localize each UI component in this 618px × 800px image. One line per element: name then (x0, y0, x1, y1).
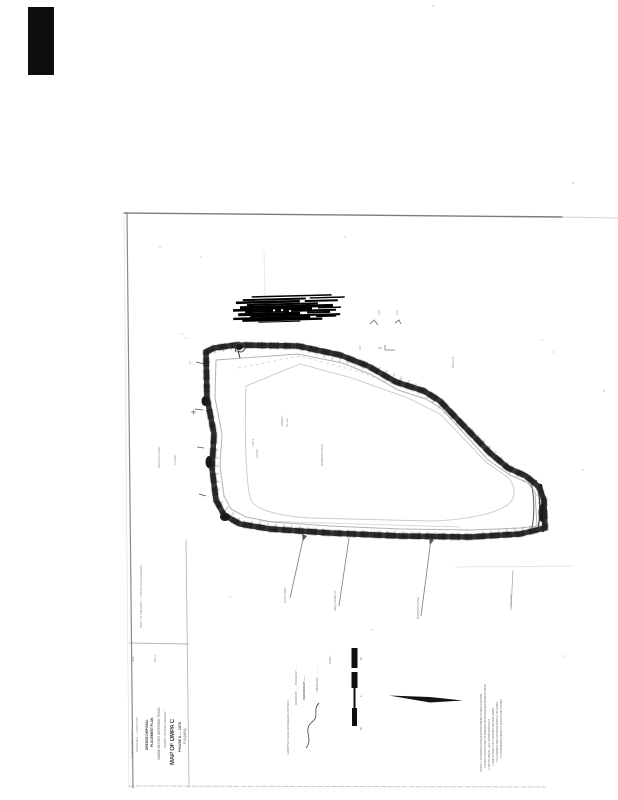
scale-tick-1: 40 (361, 658, 364, 660)
map-label-area-elevation: EL +9.0 (286, 418, 289, 427)
approval-line-date: DATE .... (329, 654, 332, 664)
map-spot-elevation-3: 10.8 (359, 345, 362, 350)
signature-squiggle (306, 703, 319, 748)
titleblock-waterway-line: SABINE-NECHES WATERWAY, TEXAS (158, 708, 161, 760)
titleblock-vicinity-line: VICINITY OF PORT ARTHUR (164, 712, 167, 748)
map-label-dike-station: DIKE STA (452, 357, 455, 368)
map-label-slope: SLOPE (256, 449, 259, 458)
titleblock-phase-line: PHASE II — 1976 (178, 722, 182, 752)
interior-contours (215, 354, 537, 530)
map-spot-elevation-4: 12 (190, 361, 193, 364)
margin-file-number: NO. 4 (154, 655, 157, 662)
graphic-scale-bar (352, 648, 358, 726)
titleblock-sheet-code: P-III (MPA) (184, 729, 188, 744)
approval-line-approved: APPROVED ................ (316, 667, 319, 692)
map-callout-borrow-ditch: BORROW DITCH (417, 597, 420, 619)
margin-agency-column: DEPT. OF THE ARMY — CORPS OF ENGINEERS (140, 565, 143, 628)
map-callout-spillway: SPILLWAY (510, 594, 513, 607)
scale-tick-2: 0 (361, 696, 364, 697)
map-spot-elevation-2: 11.4 (396, 310, 399, 315)
scanned-site-plan-page: SHAW & ASSOC. INC. ENGINEERS — SURVEYORS… (0, 0, 618, 800)
map-label-area: DMPA C (281, 416, 284, 426)
note-line-6: 6. COORDINATES REFER TO STATE PLANE SYST… (501, 699, 504, 758)
approval-line-checked: CHECKED BY ........ (303, 676, 306, 700)
titleblock-firm-line2: ENGINEERS — SURVEYORS (136, 717, 139, 752)
scan-speckles (159, 5, 605, 657)
scale-pointer-wedge (389, 696, 463, 703)
map-callout-exist-dike: EXIST. DIKE (284, 588, 287, 603)
titleblock-firm-line: SHAW & ASSOC. INC. (131, 730, 134, 758)
map-label-borrow-ditch: BORROW DITCH (321, 444, 324, 466)
map-spot-elevation-1: 11.6 (378, 310, 381, 315)
leaders-and-ticks (191, 320, 513, 616)
titleblock-main-title: MAP OF DMPA C (170, 719, 176, 765)
map-label-existing-levee: EXISTING LEVEE (158, 447, 161, 468)
map-label-slope-ratio: 1 ON 3 (252, 439, 255, 447)
margin-file-label: FILE (132, 657, 135, 662)
site-plan-drawing (0, 0, 618, 800)
map-callout-new-levee: NEW LEVEE CL (334, 591, 337, 611)
redaction-scribble (233, 295, 346, 323)
approval-line-drawn: DRAWN BY ........ TRACED BY ........ (295, 665, 298, 705)
titleblock-subtitle1: DREDGE DISPOSAL (146, 719, 149, 750)
titleblock-subtitle2: PLACEMENT PLAN (151, 718, 154, 747)
scale-tick-3: 40 (361, 728, 364, 730)
approval-line-submitted: SUBMITTED: CHIEF, ENGINEERING DIVISION (287, 701, 290, 755)
map-label-centerline: CL DIKE (174, 455, 177, 465)
